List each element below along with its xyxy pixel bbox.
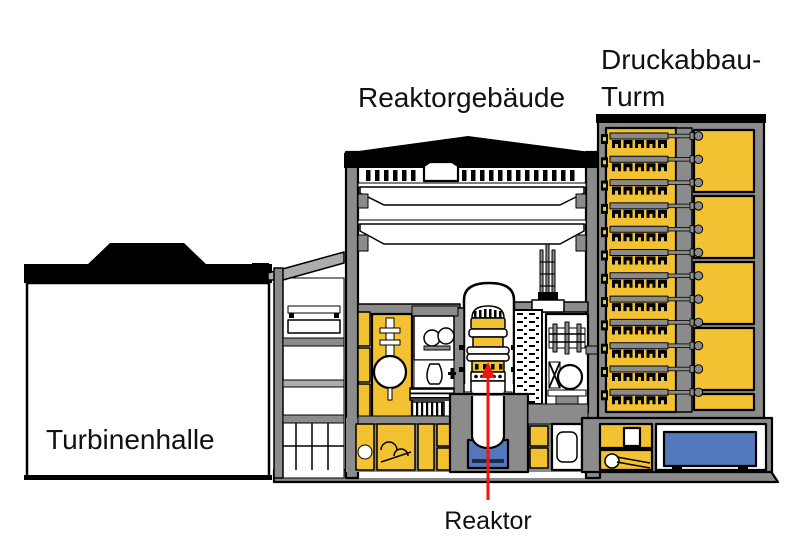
basement-cell: [418, 424, 434, 470]
annex-floor: [283, 380, 344, 387]
roof-tick: [402, 170, 407, 181]
core-stud: [499, 364, 503, 370]
shaft-cell: [358, 384, 370, 420]
annex-crane-beam: [288, 306, 340, 313]
girder-bracket: [358, 194, 368, 208]
dome-nub: [459, 367, 465, 372]
roof-tick: [498, 170, 503, 181]
label-turbine-hall: Turbinenhalle: [46, 424, 215, 455]
tank: [374, 356, 406, 388]
girder-bracket: [576, 194, 586, 208]
crane-cab: [424, 162, 458, 181]
crane-girder-upper: [360, 187, 584, 205]
room-ceiling: [412, 306, 458, 316]
annex-roof-stub: [252, 263, 269, 273]
basement-device: [358, 445, 372, 459]
core-stud: [491, 364, 495, 370]
tower-basement: [582, 418, 772, 472]
flange-plate: [565, 322, 569, 354]
pump-motor: [558, 365, 582, 389]
annex-left-wall: [274, 268, 283, 478]
vessel-ring: [469, 329, 507, 337]
plant-cross-section-figure: Turbinenhalle: [0, 0, 800, 552]
vessel-flange: [467, 354, 509, 361]
suppression-chamber-panel: [694, 328, 754, 390]
vessel-bottle: [427, 364, 442, 384]
turbine-hall-baseline: [24, 475, 272, 480]
fuel-pool: [514, 310, 542, 404]
storage-vessel: [557, 432, 577, 462]
flange-plate: [577, 324, 581, 352]
flange-plate: [553, 324, 557, 352]
suppression-chamber-panel: [694, 262, 754, 324]
shaft-cell: [358, 312, 370, 346]
suppression-chamber-panel-small: [694, 394, 754, 410]
container-foot: [738, 466, 748, 471]
heat-exchanger: [410, 388, 454, 400]
auxiliary-rooms-left: [358, 312, 412, 420]
tower-cell-box: [624, 428, 640, 446]
roof-tick: [375, 170, 380, 181]
roof-tick: [525, 170, 530, 181]
basement-cell: [530, 448, 548, 468]
beam-hook: [334, 313, 339, 318]
basement-cell: [530, 426, 548, 446]
separator-band: [473, 337, 503, 347]
vessel-flange: [467, 347, 509, 354]
roof-tick: [570, 170, 575, 181]
roof-tick: [534, 170, 539, 181]
small-valve-stem: [451, 368, 454, 379]
standpipe: [386, 318, 394, 358]
roof-tick: [516, 170, 521, 181]
core-stud: [475, 364, 479, 370]
roof-tick: [543, 170, 548, 181]
roof-tick: [552, 170, 557, 181]
label-pressure-tower-line1: Druckabbau-: [601, 44, 761, 75]
roof-tick: [411, 170, 416, 181]
roof-tick: [489, 170, 494, 181]
machine-base: [548, 390, 586, 396]
dome-nub: [459, 345, 465, 350]
tower-roof: [596, 114, 766, 123]
shaft-cell: [358, 348, 370, 382]
annex-equipment-box: [288, 320, 340, 333]
pipe-flange: [380, 340, 400, 345]
roof-tick: [471, 170, 476, 181]
pipe-flange: [380, 328, 400, 333]
roof-tick: [366, 170, 371, 181]
pump-wheel: [605, 454, 619, 468]
container-foot: [672, 466, 682, 471]
turbine-hall-roof-monitor: [86, 243, 208, 266]
steam-dryer-band: [471, 318, 505, 329]
annex-floor: [283, 338, 344, 346]
pressure-suppression-tower: Druckabbau- Turm: [582, 44, 772, 472]
roof-tick: [393, 170, 398, 181]
roof-tick: [384, 170, 389, 181]
pool-floor: [528, 404, 588, 424]
machine-pedestal: [556, 396, 578, 404]
label-reactor-building: Reaktorgebäude: [358, 82, 565, 113]
diagram-canvas: Turbinenhalle: [0, 0, 800, 552]
label-pressure-tower-line2: Turm: [601, 81, 665, 112]
turbine-hall-building: Turbinenhalle: [24, 243, 272, 480]
roof-tick: [507, 170, 512, 181]
transport-container: [664, 432, 756, 466]
turbine-hall-roof: [24, 264, 272, 283]
reactor-building-roof: [344, 136, 598, 168]
pipe-bundle: [412, 402, 444, 416]
basement-ceiling: [358, 416, 458, 424]
crane-girder-lower: [360, 224, 584, 244]
label-reactor: Reaktor: [444, 507, 532, 535]
tank-drain: [388, 388, 392, 400]
valve-shelf: [424, 346, 450, 350]
annex-floor: [283, 415, 344, 423]
roof-tick: [480, 170, 485, 181]
girder-bracket: [358, 235, 368, 251]
beam-hook: [289, 313, 294, 318]
girder-bracket: [576, 235, 586, 251]
valve-body: [438, 328, 454, 344]
reactor-building: Reaktorgebäude: [344, 82, 600, 478]
roof-tick: [462, 170, 467, 181]
roof-tick: [561, 170, 566, 181]
